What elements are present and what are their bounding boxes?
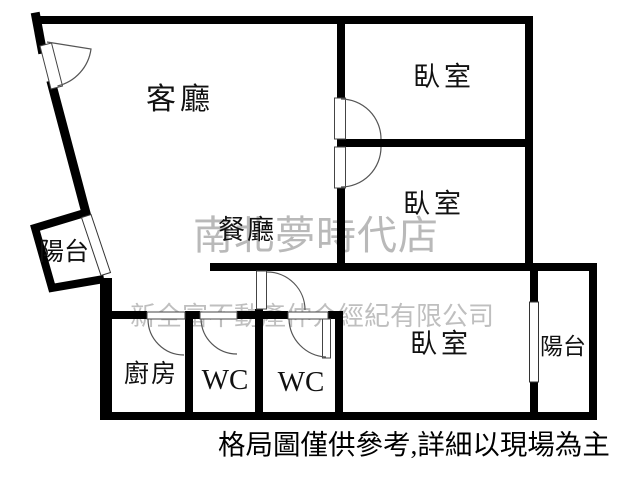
wall-slant-upper: [36, 17, 42, 49]
room-label-bedroom3: 臥室: [410, 329, 472, 359]
wall-top: [33, 16, 533, 24]
wall-kitchen-wc1-divider: [185, 319, 193, 412]
wall-wc1-top-left: [185, 311, 200, 319]
wall-living-bedroom2: [337, 188, 345, 271]
room-label-bedroom1: 臥室: [413, 62, 475, 92]
wc1-door-frame: [200, 312, 237, 319]
wall-bedroom-divider: [337, 139, 533, 147]
wc2-door-frame: [288, 312, 328, 319]
room-label-living: 客廳: [146, 83, 214, 116]
wc2-door-leaf: [323, 319, 331, 358]
floor-plan-page: 南北夢時代店 新全富不動產仲介經紀有限公司: [0, 0, 619, 480]
room-label-kitchen: 廚房: [124, 360, 178, 388]
wall-outer-right: [589, 265, 597, 420]
wall-bedroom3-balcony-lower: [530, 382, 538, 412]
bedroom1-door-swing: [341, 99, 381, 139]
wall-bedroom3-balcony-upper: [530, 271, 538, 302]
wall-wc2-bedroom3-divider: [335, 311, 343, 412]
wall-living-bedroom1: [337, 20, 345, 98]
entrance-door-frame: [40, 43, 63, 89]
balcony2-window: [530, 302, 539, 382]
room-label-dining: 餐廳: [218, 215, 276, 245]
bedroom2-door-swing: [341, 147, 381, 187]
room-label-wc2: WC: [278, 366, 325, 398]
kitchen-door-frame: [147, 312, 185, 319]
floor-plan: 南北夢時代店 新全富不動產仲介經紀有限公司: [0, 0, 619, 480]
wall-kitchen-top: [100, 311, 147, 319]
bedroom1-door-frame: [335, 98, 346, 139]
room-label-wc1: WC: [202, 364, 249, 396]
bedroom2-door-frame: [335, 147, 346, 188]
wall-kitchen-left: [100, 278, 112, 420]
wall-wc1-wc2-divider: [255, 309, 263, 412]
room-label-balcony2: 陽台: [540, 334, 586, 359]
room-label-balcony1: 陽台: [39, 238, 89, 266]
disclaimer-note: 格局圖僅供參考,詳細以現場為主: [218, 429, 610, 460]
room-label-bedroom2: 臥室: [403, 189, 465, 219]
corridor-door-frame: [257, 271, 267, 309]
wall-bottom: [100, 412, 597, 420]
wall-slant-lower: [52, 85, 86, 213]
wall-middle-horizontal: [210, 263, 597, 271]
